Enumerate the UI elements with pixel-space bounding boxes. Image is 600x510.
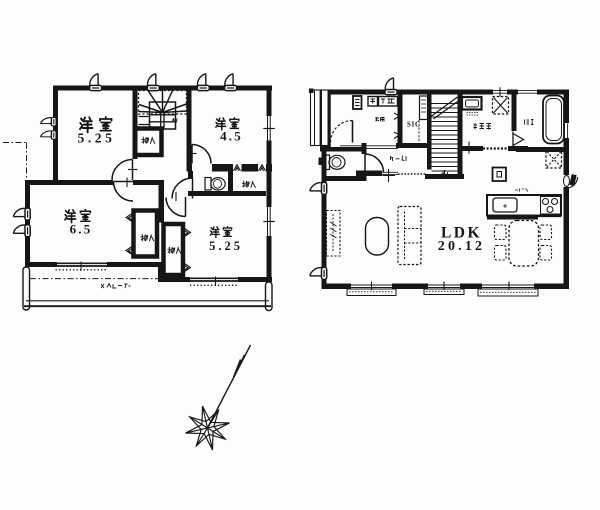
svg-text:20.12: 20.12 (438, 239, 486, 254)
svg-text:6.5: 6.5 (70, 222, 93, 237)
svg-text:SIC: SIC (407, 122, 421, 129)
svg-text:5.25: 5.25 (77, 131, 115, 146)
svg-text:4.5: 4.5 (220, 129, 243, 144)
svg-text:5.25: 5.25 (209, 239, 243, 253)
